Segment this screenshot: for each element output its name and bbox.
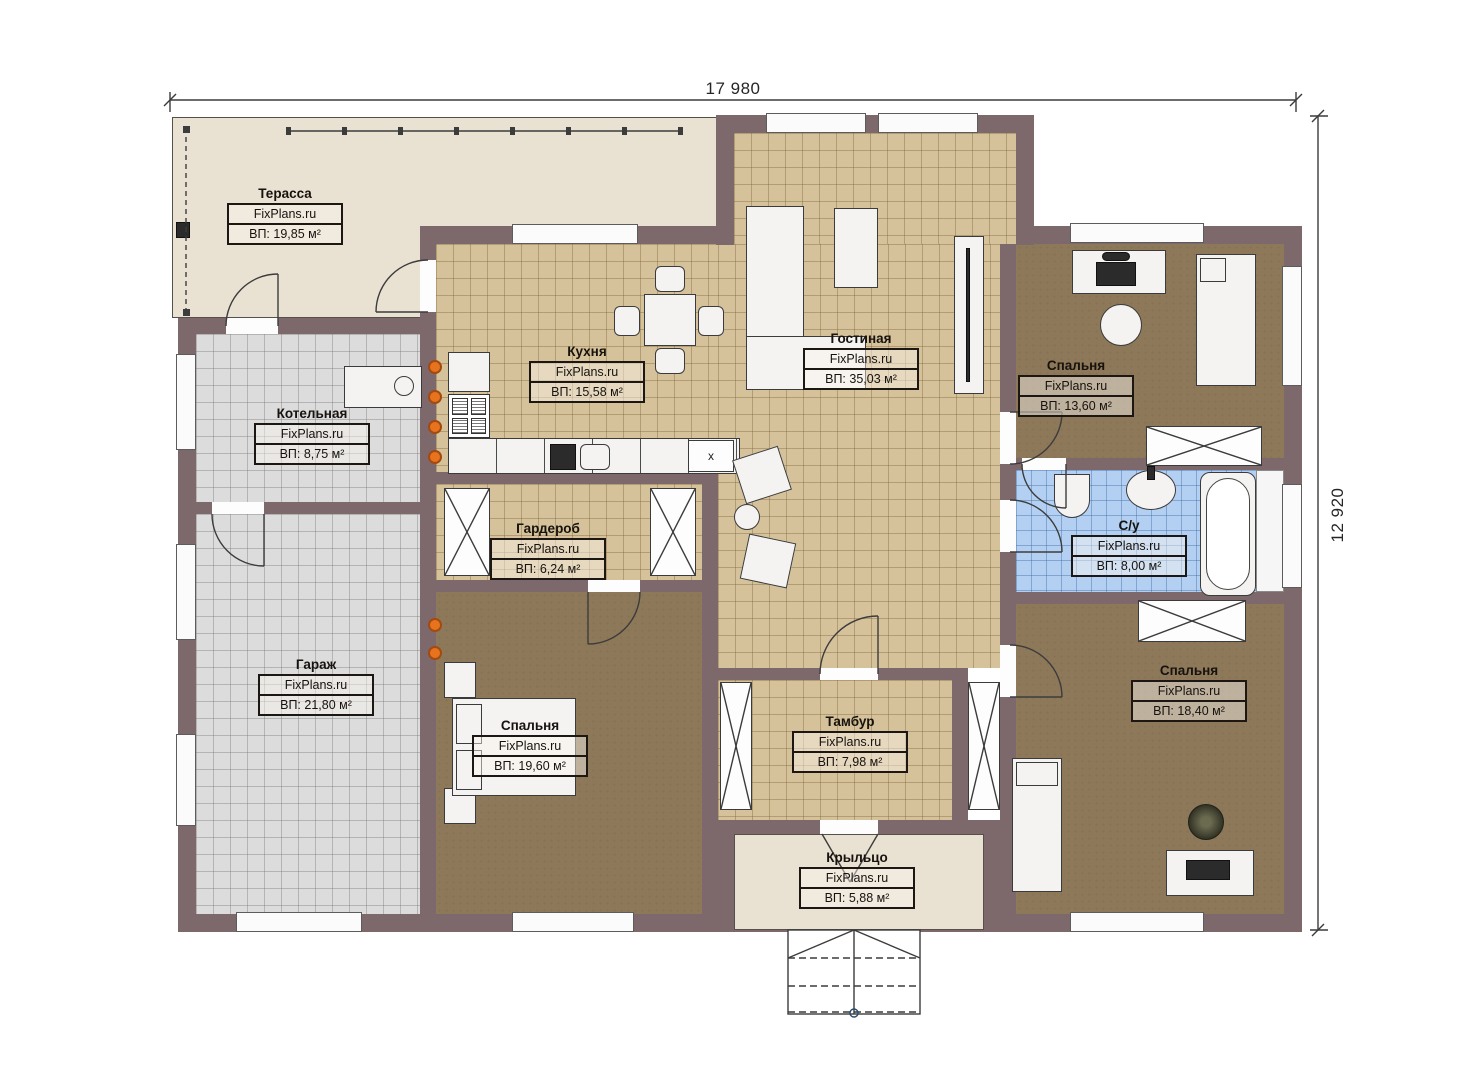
dimension-top: 17 980 [678,79,788,99]
window [176,734,196,826]
room-area: ВП: 35,03 м² [805,370,917,388]
room-label-bathroom: С/у FixPlans.ru ВП: 8,00 м² [1073,518,1185,577]
room-label-kitchen: Кухня FixPlans.ru ВП: 15,58 м² [531,344,643,403]
chair [655,348,685,374]
printer-tray [1102,252,1130,261]
room-name: Спальня [1047,358,1105,373]
door-opening [226,318,278,334]
wall [420,244,436,932]
chair [698,306,724,336]
wall [716,115,1034,133]
computer [1186,860,1230,880]
chair [655,266,685,292]
door-opening [588,580,640,592]
wardrobe-closet [650,488,696,576]
radiator-valve [428,420,442,434]
tv-screen [966,248,970,382]
window [766,113,866,133]
hall-closet [968,682,1000,810]
watermark: FixPlans.ru [474,737,586,757]
radiator-valve [428,618,442,632]
room-area: ВП: 21,80 м² [260,696,372,714]
watermark: FixPlans.ru [794,733,906,753]
boiler-dial [394,376,414,396]
window [1282,266,1302,386]
office-chair [1100,304,1142,346]
wall [952,668,968,832]
radiator-valve [428,390,442,404]
dining-table [644,294,696,346]
nightstand [444,662,476,698]
room-label-garage: Гараж FixPlans.ru ВП: 21,80 м² [260,657,372,716]
radiator-valve [428,450,442,464]
watermark: FixPlans.ru [1073,537,1185,557]
window [1070,223,1204,243]
room-area: ВП: 6,24 м² [492,560,604,578]
wardrobe-closet [444,488,490,576]
watermark: FixPlans.ru [260,676,372,696]
room-name: Гараж [296,657,336,672]
wardrobe-closet [1138,600,1246,642]
window [878,113,978,133]
watermark: FixPlans.ru [801,869,913,889]
room-area: ВП: 8,75 м² [256,445,368,463]
radiator-valve [428,646,442,660]
sink-drainer [550,444,576,470]
wall [436,580,702,592]
door-opening [1022,458,1066,470]
wall [702,472,718,932]
room-name: Спальня [1160,663,1218,678]
kitchen-sink [580,444,610,470]
pillow [1016,762,1058,786]
watermark: FixPlans.ru [1133,682,1245,702]
room-area: ВП: 19,85 м² [229,225,341,243]
wardrobe-closet [1146,426,1262,466]
room-name: Спальня [501,718,559,733]
pillow [1200,258,1226,282]
watermark: FixPlans.ru [256,425,368,445]
room-label-vestibule: Тамбур FixPlans.ru ВП: 7,98 м² [794,714,906,773]
room-name: Тамбур [826,714,875,729]
room-area: ВП: 13,60 м² [1020,397,1132,415]
bathroom-niche [1256,470,1284,592]
bathtub-basin [1206,478,1250,590]
window [176,354,196,450]
room-area: ВП: 8,00 м² [1073,557,1185,575]
chair [614,306,640,336]
printer [1096,262,1136,286]
door-opening [820,668,878,680]
door-opening [1000,500,1016,552]
room-label-bedroom-top-right: Спальня FixPlans.ru ВП: 13,60 м² [1020,358,1132,417]
room-name: Гардероб [516,521,580,536]
watermark: FixPlans.ru [1020,377,1132,397]
room-name: Гостиная [830,331,891,346]
watermark: FixPlans.ru [492,540,604,560]
window [1070,912,1204,932]
radiator-valve [428,360,442,374]
garage-gate [236,912,362,932]
door-opening [1000,645,1016,697]
room-label-boiler-room: Котельная FixPlans.ru ВП: 8,75 м² [256,406,368,465]
room-area: ВП: 18,40 м² [1133,702,1245,720]
room-name: Терасса [258,186,312,201]
cabinet [834,208,878,288]
room-name: Крыльцо [826,850,887,865]
door-opening [1000,412,1016,464]
watermark: FixPlans.ru [531,363,643,383]
fridge [448,352,490,392]
room-name: Кухня [567,344,606,359]
wall [178,318,436,334]
watermark: FixPlans.ru [805,350,917,370]
room-area: ВП: 7,98 м² [794,753,906,771]
room-label-terrace: Терасса FixPlans.ru ВП: 19,85 м² [229,186,341,245]
hall-closet [720,682,752,810]
stove [448,394,490,438]
room-label-bedroom-bottom-right: Спальня FixPlans.ru ВП: 18,40 м² [1133,663,1245,722]
plant [1188,804,1224,840]
door-opening [212,502,264,514]
side-table [734,504,760,530]
watermark: FixPlans.ru [229,205,341,225]
armchair [740,534,797,589]
terrace-post [176,222,190,238]
door-opening [420,260,436,312]
room-label-bedroom-bottom-left: Спальня FixPlans.ru ВП: 19,60 м² [474,718,586,777]
room-label-porch: Крыльцо FixPlans.ru ВП: 5,88 м² [801,850,913,909]
room-label-living-room: Гостиная FixPlans.ru ВП: 35,03 м² [805,331,917,390]
wall [718,834,734,932]
cabinet-marker: x [688,440,734,472]
room-area: ВП: 19,60 м² [474,757,586,775]
room-name: С/у [1118,518,1139,533]
window [176,544,196,640]
room-label-wardrobe: Гардероб FixPlans.ru ВП: 6,24 м² [492,521,604,580]
toilet [1054,474,1090,518]
window [512,224,638,244]
dimension-right: 12 920 [1328,460,1348,570]
cabinet-marker-text: x [708,449,714,463]
door-opening [820,820,878,834]
window [512,912,634,932]
window [1282,484,1302,588]
floor-plan: x [0,0,1473,1080]
faucet [1147,466,1155,480]
room-area: ВП: 15,58 м² [531,383,643,401]
room-area: ВП: 5,88 м² [801,889,913,907]
room-name: Котельная [277,406,348,421]
